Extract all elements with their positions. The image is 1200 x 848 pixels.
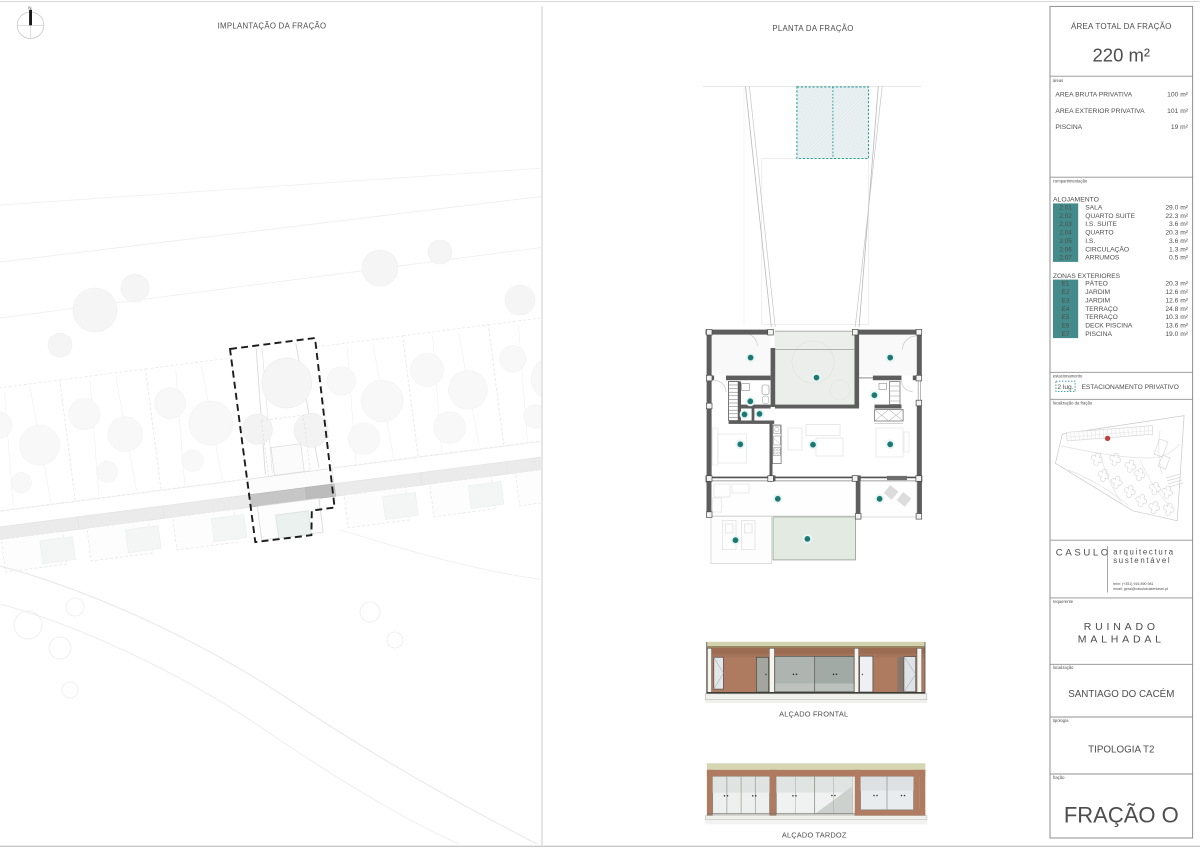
svg-text:101 m²: 101 m² — [1167, 108, 1189, 115]
svg-text:E4: E4 — [1062, 306, 1070, 313]
svg-text:220 m²: 220 m² — [1093, 45, 1151, 66]
svg-text:estacionamento: estacionamento — [1053, 373, 1083, 378]
svg-text:2 lug.: 2 lug. — [1057, 384, 1073, 391]
svg-text:SALA: SALA — [1085, 205, 1103, 212]
svg-text:2.04: 2.04 — [1059, 230, 1072, 237]
svg-text:ALÇADO TARDOZ: ALÇADO TARDOZ — [782, 831, 847, 840]
svg-text:03: 03 — [749, 399, 753, 403]
svg-text:20.3 m²: 20.3 m² — [1165, 281, 1188, 288]
svg-text:JARDIM: JARDIM — [1085, 289, 1110, 296]
svg-text:AREA EXTERIOR PRIVATIVA: AREA EXTERIOR PRIVATIVA — [1055, 108, 1145, 115]
svg-text:compartimentação: compartimentação — [1053, 178, 1088, 183]
svg-text:CIRCULAÇÃO: CIRCULAÇÃO — [1085, 244, 1129, 253]
svg-text:2.03: 2.03 — [1059, 221, 1072, 228]
svg-text:fração: fração — [1053, 775, 1065, 780]
svg-text:04: 04 — [889, 442, 893, 446]
svg-text:24.8 m²: 24.8 m² — [1165, 306, 1188, 313]
svg-text:100 m²: 100 m² — [1167, 92, 1189, 99]
svg-text:TERRAÇO: TERRAÇO — [1085, 314, 1118, 321]
svg-text:TIPOLOGIA T2: TIPOLOGIA T2 — [1088, 745, 1154, 756]
svg-text:E4: E4 — [776, 497, 780, 501]
svg-text:1.3 m²: 1.3 m² — [1169, 246, 1189, 253]
svg-text:JARDIM: JARDIM — [1085, 297, 1110, 304]
svg-text:E5: E5 — [878, 497, 882, 501]
svg-text:29.0 m²: 29.0 m² — [1165, 205, 1188, 212]
svg-text:PISCINA: PISCINA — [1085, 331, 1112, 338]
svg-text:I.S. SUITE: I.S. SUITE — [1085, 221, 1117, 228]
svg-text:12.6 m²: 12.6 m² — [1165, 297, 1188, 304]
svg-text:2.01: 2.01 — [1059, 205, 1072, 212]
svg-text:E3: E3 — [1062, 297, 1070, 304]
svg-text:AREA BRUTA PRIVATIVA: AREA BRUTA PRIVATIVA — [1055, 92, 1132, 99]
svg-text:E7: E7 — [806, 537, 810, 541]
svg-text:12.6 m²: 12.6 m² — [1165, 289, 1188, 296]
svg-text:19 m²: 19 m² — [1171, 124, 1189, 131]
svg-text:E6: E6 — [734, 538, 738, 542]
svg-text:E1: E1 — [1062, 281, 1070, 288]
svg-text:FRAÇÃO O: FRAÇÃO O — [1064, 803, 1179, 828]
svg-text:3.6 m²: 3.6 m² — [1169, 238, 1189, 245]
svg-text:requerente: requerente — [1053, 599, 1074, 604]
svg-text:CASULO: CASULO — [1056, 548, 1111, 559]
svg-text:tipologia: tipologia — [1053, 718, 1069, 723]
svg-text:IMPLANTAÇÃO DA FRAÇÃO: IMPLANTAÇÃO DA FRAÇÃO — [218, 22, 327, 31]
svg-text:ALÇADO FRONTAL: ALÇADO FRONTAL — [779, 710, 848, 719]
svg-text:sustentável: sustentável — [1113, 556, 1171, 565]
svg-text:2.05: 2.05 — [1059, 238, 1072, 245]
svg-text:localização: localização — [1053, 665, 1074, 670]
svg-text:TERRAÇO: TERRAÇO — [1085, 306, 1118, 313]
svg-text:MALHADAL: MALHADAL — [1078, 634, 1165, 646]
svg-text:ZONAS EXTERIORES: ZONAS EXTERIORES — [1053, 273, 1121, 280]
svg-text:SANTIAGO DO CACÉM: SANTIAGO DO CACÉM — [1068, 689, 1174, 700]
svg-text:ÁREA TOTAL DA FRAÇÃO: ÁREA TOTAL DA FRAÇÃO — [1071, 22, 1172, 31]
svg-text:2.06: 2.06 — [1059, 246, 1072, 253]
svg-text:ARRUMOS: ARRUMOS — [1085, 255, 1120, 262]
svg-text:N: N — [28, 6, 31, 11]
svg-text:localização da fração: localização da fração — [1053, 400, 1093, 405]
svg-text:I.S.: I.S. — [1085, 238, 1095, 245]
svg-text:E2: E2 — [1062, 289, 1070, 296]
svg-text:2.07: 2.07 — [1059, 255, 1072, 262]
svg-text:0.5 m²: 0.5 m² — [1169, 255, 1189, 262]
svg-text:20.3 m²: 20.3 m² — [1165, 230, 1188, 237]
svg-text:07: 07 — [758, 412, 762, 416]
svg-text:19.0 m²: 19.0 m² — [1165, 331, 1188, 338]
svg-text:áreas: áreas — [1053, 78, 1063, 83]
svg-text:E2: E2 — [749, 356, 753, 360]
svg-text:06: 06 — [743, 413, 747, 417]
svg-text:2.02: 2.02 — [1059, 213, 1072, 220]
svg-text:QUARTO SUITE: QUARTO SUITE — [1085, 213, 1135, 220]
svg-text:10.3 m²: 10.3 m² — [1165, 314, 1188, 321]
svg-text:PÁTEO: PÁTEO — [1085, 279, 1108, 288]
svg-text:E7: E7 — [1062, 331, 1070, 338]
svg-text:05: 05 — [873, 393, 877, 397]
svg-text:ESTACIONAMENTO PRIVATIVO: ESTACIONAMENTO PRIVATIVO — [1082, 384, 1179, 391]
svg-text:3.6 m²: 3.6 m² — [1169, 221, 1189, 228]
svg-text:PISCINA: PISCINA — [1055, 124, 1082, 131]
svg-text:22.3 m²: 22.3 m² — [1165, 213, 1188, 220]
svg-text:E3: E3 — [888, 356, 892, 360]
svg-text:E1: E1 — [815, 376, 819, 380]
svg-text:QUARTO: QUARTO — [1085, 230, 1113, 237]
svg-text:RUINADO: RUINADO — [1084, 621, 1159, 633]
svg-text:01: 01 — [811, 443, 815, 447]
svg-text:E5: E5 — [1062, 314, 1070, 321]
svg-text:telm: (+351) 916 890 981: telm: (+351) 916 890 981 — [1113, 582, 1153, 586]
svg-text:email: geral@casulosustentavel: email: geral@casulosustentavel.pt — [1113, 587, 1168, 591]
svg-text:13.6 m²: 13.6 m² — [1165, 323, 1188, 330]
svg-text:DECK PISCINA: DECK PISCINA — [1085, 323, 1133, 330]
svg-text:ALOJAMENTO: ALOJAMENTO — [1053, 197, 1099, 204]
svg-text:E6: E6 — [1062, 323, 1070, 330]
svg-text:02: 02 — [739, 442, 743, 446]
svg-text:PLANTA DA FRAÇÃO: PLANTA DA FRAÇÃO — [772, 24, 853, 33]
